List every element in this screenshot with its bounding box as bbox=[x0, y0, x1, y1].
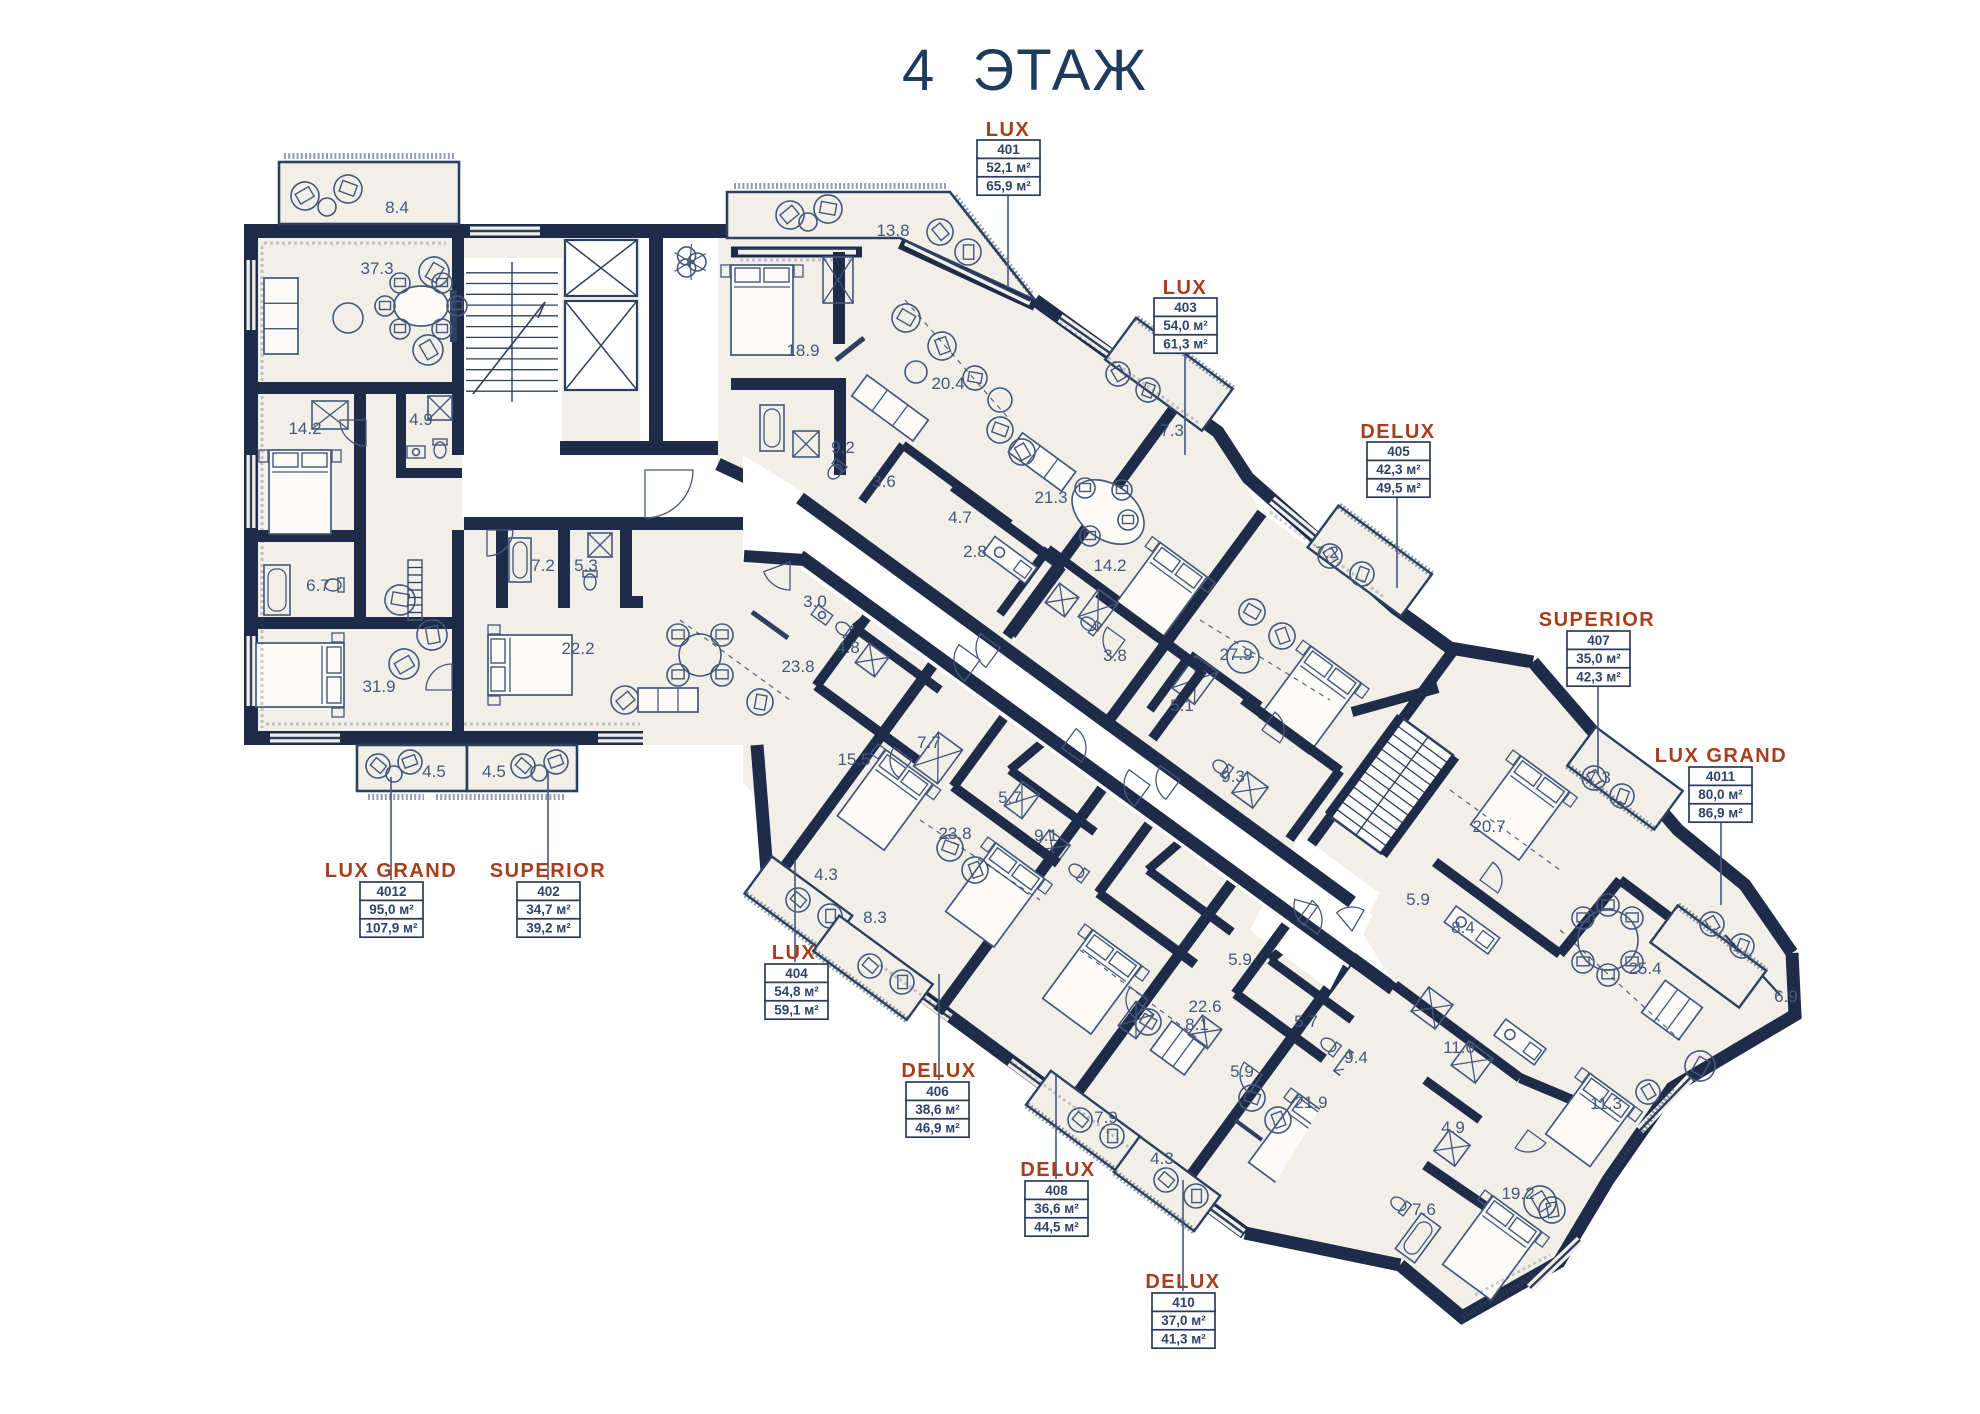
svg-text:35,0 м²: 35,0 м² bbox=[1576, 651, 1621, 666]
svg-text:59,1 м²: 59,1 м² bbox=[774, 1003, 819, 1018]
svg-text:7.2: 7.2 bbox=[1315, 543, 1339, 562]
svg-text:DELUX: DELUX bbox=[1020, 1159, 1095, 1181]
svg-text:DELUX: DELUX bbox=[901, 1060, 976, 1082]
svg-text:7.3: 7.3 bbox=[1160, 421, 1184, 440]
svg-text:11.6: 11.6 bbox=[1443, 1038, 1475, 1057]
svg-text:54,0 м²: 54,0 м² bbox=[1163, 318, 1208, 333]
svg-text:14.2: 14.2 bbox=[288, 419, 321, 438]
svg-text:36,6 м²: 36,6 м² bbox=[1034, 1201, 1079, 1216]
svg-text:2.8: 2.8 bbox=[963, 542, 987, 561]
svg-text:7.2: 7.2 bbox=[531, 556, 555, 575]
svg-text:27.9: 27.9 bbox=[1219, 645, 1252, 664]
svg-text:406: 406 bbox=[926, 1084, 949, 1099]
svg-text:405: 405 bbox=[1387, 444, 1410, 459]
svg-text:5.9: 5.9 bbox=[1230, 1062, 1254, 1081]
svg-text:8.1: 8.1 bbox=[1185, 1015, 1209, 1034]
svg-text:31.9: 31.9 bbox=[362, 677, 395, 696]
svg-text:4.9: 4.9 bbox=[409, 410, 433, 429]
svg-text:61,3 м²: 61,3 м² bbox=[1163, 337, 1208, 352]
svg-text:11.3: 11.3 bbox=[1590, 1094, 1622, 1113]
svg-text:25.4: 25.4 bbox=[1628, 959, 1661, 978]
svg-text:3.8: 3.8 bbox=[1103, 646, 1127, 665]
svg-text:7.3: 7.3 bbox=[1587, 768, 1611, 787]
svg-text:DELUX: DELUX bbox=[1145, 1271, 1220, 1293]
svg-text:46,9 м²: 46,9 м² bbox=[915, 1121, 960, 1136]
svg-text:21.3: 21.3 bbox=[1034, 488, 1067, 507]
svg-text:9.3: 9.3 bbox=[1221, 767, 1245, 786]
svg-text:7.7: 7.7 bbox=[917, 733, 941, 752]
svg-text:5.3: 5.3 bbox=[574, 556, 598, 575]
svg-text:23.8: 23.8 bbox=[781, 657, 814, 676]
svg-text:403: 403 bbox=[1174, 300, 1197, 315]
svg-text:4 ЭТАЖ: 4 ЭТАЖ bbox=[902, 38, 1148, 103]
svg-text:7.9: 7.9 bbox=[1094, 1108, 1118, 1127]
svg-text:42,3 м²: 42,3 м² bbox=[1376, 462, 1421, 477]
svg-text:80,0 м²: 80,0 м² bbox=[1698, 787, 1743, 802]
svg-text:LUX: LUX bbox=[772, 942, 817, 964]
svg-text:52,1 м²: 52,1 м² bbox=[986, 160, 1031, 175]
svg-text:65,9 м²: 65,9 м² bbox=[986, 179, 1031, 194]
svg-text:20.7: 20.7 bbox=[1472, 817, 1505, 836]
svg-text:9.2: 9.2 bbox=[831, 438, 855, 457]
svg-text:4012: 4012 bbox=[376, 884, 406, 899]
svg-text:8.4: 8.4 bbox=[1451, 918, 1475, 937]
svg-text:SUPERIOR: SUPERIOR bbox=[490, 860, 606, 882]
svg-text:95,0 м²: 95,0 м² bbox=[369, 902, 414, 917]
svg-text:8.3: 8.3 bbox=[863, 908, 887, 927]
svg-text:SUPERIOR: SUPERIOR bbox=[1539, 609, 1655, 631]
svg-text:5.9: 5.9 bbox=[1228, 950, 1252, 969]
svg-text:3.0: 3.0 bbox=[803, 592, 827, 611]
svg-text:4011: 4011 bbox=[1706, 769, 1736, 784]
svg-text:22.2: 22.2 bbox=[561, 639, 594, 658]
svg-text:4.8: 4.8 bbox=[836, 638, 860, 657]
svg-text:20.4: 20.4 bbox=[931, 374, 964, 393]
svg-text:4.3: 4.3 bbox=[1150, 1149, 1174, 1168]
svg-text:LUX: LUX bbox=[1163, 277, 1208, 299]
svg-text:23.8: 23.8 bbox=[938, 824, 971, 843]
svg-text:5.7: 5.7 bbox=[1294, 1012, 1318, 1031]
svg-text:18.9: 18.9 bbox=[786, 341, 819, 360]
svg-text:9.1: 9.1 bbox=[1034, 826, 1058, 845]
svg-text:86,9 м²: 86,9 м² bbox=[1698, 806, 1743, 821]
svg-text:6.9: 6.9 bbox=[1774, 987, 1798, 1006]
svg-text:49,5 м²: 49,5 м² bbox=[1376, 481, 1421, 496]
svg-text:19.2: 19.2 bbox=[1501, 1184, 1534, 1203]
svg-text:5.9: 5.9 bbox=[1406, 890, 1430, 909]
svg-text:41,3 м²: 41,3 м² bbox=[1161, 1332, 1206, 1347]
svg-text:14.2: 14.2 bbox=[1093, 556, 1126, 575]
svg-text:37.3: 37.3 bbox=[360, 259, 393, 278]
svg-text:9.4: 9.4 bbox=[1344, 1048, 1368, 1067]
svg-text:39,2 м²: 39,2 м² bbox=[526, 921, 571, 936]
svg-text:DELUX: DELUX bbox=[1360, 421, 1435, 443]
svg-text:21.9: 21.9 bbox=[1294, 1093, 1327, 1112]
svg-text:15.5: 15.5 bbox=[837, 750, 870, 769]
svg-text:408: 408 bbox=[1045, 1183, 1068, 1198]
svg-text:401: 401 bbox=[997, 142, 1020, 157]
svg-text:404: 404 bbox=[785, 966, 808, 981]
svg-text:4.5: 4.5 bbox=[482, 762, 506, 781]
svg-text:8.4: 8.4 bbox=[385, 198, 409, 217]
svg-text:34,7 м²: 34,7 м² bbox=[526, 902, 571, 917]
svg-text:6.7: 6.7 bbox=[306, 576, 330, 595]
svg-text:22.6: 22.6 bbox=[1188, 997, 1221, 1016]
svg-text:4.3: 4.3 bbox=[814, 865, 838, 884]
svg-text:LUX GRAND: LUX GRAND bbox=[1655, 745, 1787, 767]
svg-text:107,9 м²: 107,9 м² bbox=[365, 921, 418, 936]
svg-text:44,5 м²: 44,5 м² bbox=[1034, 1220, 1079, 1235]
svg-text:3.6: 3.6 bbox=[872, 472, 896, 491]
svg-text:5.7: 5.7 bbox=[998, 788, 1022, 807]
svg-text:7.6: 7.6 bbox=[1412, 1200, 1436, 1219]
svg-text:402: 402 bbox=[537, 884, 560, 899]
svg-text:407: 407 bbox=[1587, 633, 1610, 648]
svg-text:4.7: 4.7 bbox=[948, 508, 972, 527]
svg-text:410: 410 bbox=[1172, 1295, 1195, 1310]
svg-text:4.5: 4.5 bbox=[422, 762, 446, 781]
svg-text:42,3 м²: 42,3 м² bbox=[1576, 670, 1621, 685]
svg-text:LUX: LUX bbox=[986, 119, 1031, 141]
svg-text:LUX GRAND: LUX GRAND bbox=[325, 860, 457, 882]
svg-text:5.1: 5.1 bbox=[1170, 696, 1194, 715]
svg-text:4.9: 4.9 bbox=[1441, 1118, 1465, 1137]
svg-text:37,0 м²: 37,0 м² bbox=[1161, 1313, 1206, 1328]
svg-text:38,6 м²: 38,6 м² bbox=[915, 1102, 960, 1117]
svg-text:54,8 м²: 54,8 м² bbox=[774, 984, 819, 999]
svg-text:13.8: 13.8 bbox=[876, 221, 909, 240]
